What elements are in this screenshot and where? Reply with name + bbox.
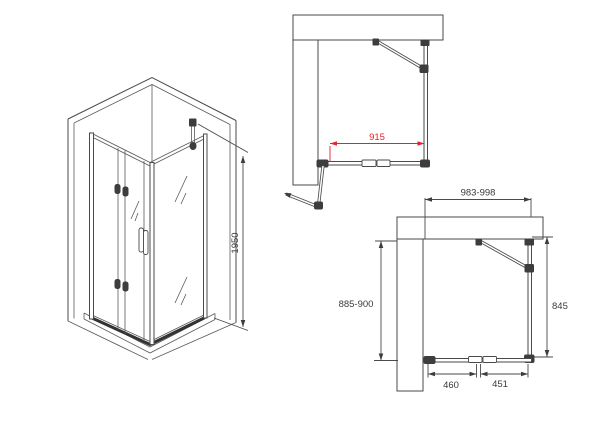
front-wall-profile (424, 356, 436, 364)
arrow-right-icon (418, 141, 425, 146)
support-bar-core (378, 42, 426, 70)
door-meeting-profile-a (362, 160, 376, 167)
side-panel-wall-fitting (525, 239, 535, 246)
dimension-front-right-label: 451 (492, 379, 508, 390)
arrow-down-icon (545, 350, 550, 357)
support-bar-wall-fitting (476, 239, 483, 246)
floor-edge-right (152, 323, 236, 360)
side-panel-wall-edge (204, 134, 208, 318)
support-bar (189, 119, 197, 151)
wall-profile-left (90, 133, 94, 319)
dimension-side-panel-label: 845 (552, 301, 568, 312)
door-top-rail (90, 133, 150, 167)
arrow-up-icon (545, 237, 550, 244)
front-panel (424, 356, 532, 364)
wall-band-top (397, 217, 543, 239)
wall-column-left (397, 239, 423, 391)
dimension-front-left-label: 460 (443, 380, 459, 391)
glass-shine-upper (175, 176, 187, 204)
side-panel-wall-fitting (421, 40, 430, 47)
glass-shine-lower (175, 277, 187, 305)
depth-extension-lines (374, 241, 398, 361)
segment-extension-lines (428, 364, 528, 378)
side-panel-glass (528, 239, 532, 361)
open-door-swing (284, 166, 323, 210)
hinge-upper-b (123, 187, 129, 197)
support-bar-glass-fitting (525, 264, 535, 273)
dimension-opening: 915 (330, 132, 425, 162)
glass-shine-left (131, 201, 139, 221)
side-extension-lines (532, 237, 553, 357)
open-door-hinge (314, 202, 323, 210)
dimension-front-segments: 460 451 (428, 364, 528, 391)
arrow-right-icon (524, 197, 531, 201)
support-bar-glass-clamp (190, 142, 197, 150)
isometric-view: 1950 (68, 78, 248, 360)
door-meeting-profile-a (469, 357, 483, 363)
support-bar-plan (373, 39, 429, 74)
arrow-left-icon (428, 372, 435, 376)
hinge-upper-a (115, 184, 121, 194)
support-bar-core (479, 241, 529, 269)
side-panel (421, 40, 430, 164)
hinge-lower-b (123, 282, 129, 292)
front-corner-fitting (420, 160, 430, 168)
fixed-side-panel (150, 134, 207, 345)
door-meeting-profile-b (377, 160, 390, 167)
plan-view-closed: 983-998 885-900 845 460 451 (339, 188, 568, 392)
dimension-depth: 885-900 (339, 241, 398, 361)
dimension-total-width-label: 983-998 (461, 188, 496, 199)
door-meeting-profile-b (483, 357, 497, 363)
arrow-up-icon (379, 241, 384, 248)
handle-bar-back (144, 231, 149, 255)
front-panel (317, 160, 431, 168)
drawing-canvas: 1950 (0, 0, 600, 424)
side-top-rail (150, 135, 206, 167)
wall-column-left (293, 40, 318, 185)
side-panel (524, 239, 535, 364)
dimension-height-label: 1950 (230, 232, 241, 253)
hinge-lower-a (115, 279, 121, 289)
plan-view-open: 915 (284, 15, 443, 210)
side-panel-glass (424, 40, 428, 163)
wall-band-top (293, 15, 443, 40)
width-extension-lines (425, 198, 531, 239)
arrow-left-icon (330, 141, 337, 146)
handle-bar-front (139, 228, 144, 252)
bifold-door (90, 133, 151, 342)
door-handle (139, 228, 148, 255)
door-hinges (115, 184, 129, 292)
support-bar-wall-bracket (189, 119, 197, 127)
arrow-down-icon (379, 354, 384, 361)
corner-profile (150, 163, 154, 345)
arrow-left-icon (425, 197, 432, 201)
dimension-depth-label: 885-900 (339, 299, 374, 310)
arrow-up-icon (241, 156, 246, 163)
arrow-left-icon (481, 372, 488, 376)
support-bar-glass-fitting (420, 65, 429, 74)
open-door-panel-2-core (286, 194, 318, 207)
dimension-total-width: 983-998 (425, 188, 531, 240)
technical-drawing: 1950 (0, 0, 600, 424)
arrow-down-icon (241, 320, 246, 327)
support-bar-wall-fitting (373, 39, 380, 46)
arrow-right-icon (470, 372, 477, 376)
dimension-side-panel: 845 (532, 237, 568, 357)
dimension-opening-label: 915 (369, 132, 385, 143)
arrow-right-icon (521, 372, 528, 376)
